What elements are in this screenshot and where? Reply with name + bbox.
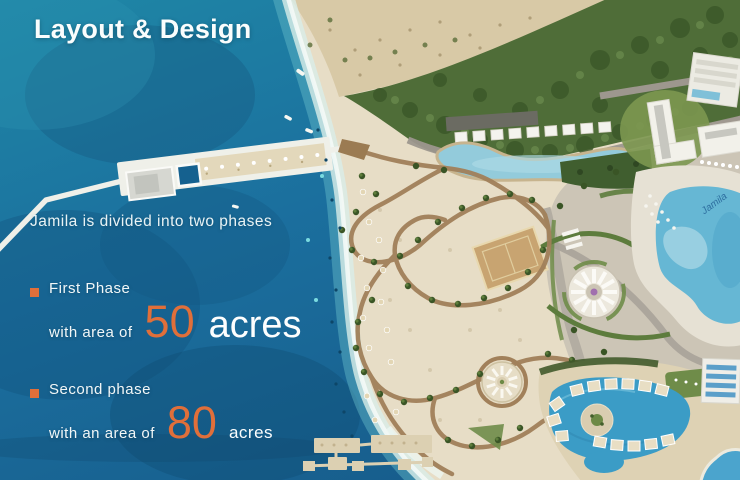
lagoon-complex [539, 358, 740, 480]
building-bottom-right [701, 358, 740, 403]
phase-2-value: 80 [167, 400, 217, 445]
phase-2-prefix: with an area of [49, 425, 155, 442]
phase-1-area: with area of 50 acres [49, 299, 302, 344]
phase-2-unit: acres [229, 424, 273, 441]
phase-1-label: First Phase [49, 280, 302, 297]
intro-text: Jamila is divided into two phases [30, 213, 272, 231]
phase-1-bullet-icon [30, 288, 39, 297]
phase-1-block: First Phase with area of 50 acres [29, 280, 302, 344]
beach-plaza [478, 358, 526, 406]
phase-2-block: Second phase with an area of 80 acres [29, 381, 273, 445]
phase-1-unit: acres [209, 306, 302, 344]
phase-2-bullet-icon [30, 389, 39, 398]
phase-1-prefix: with area of [49, 324, 133, 341]
phase-2-label: Second phase [49, 381, 273, 398]
building-top-corner [687, 53, 740, 107]
phase-2-area: with an area of 80 acres [49, 400, 273, 445]
phase-1-value: 50 [145, 299, 195, 344]
slide-title: Layout & Design [34, 14, 252, 45]
presentation-slide: Jamila [0, 0, 740, 480]
building-right-edge [698, 121, 740, 158]
